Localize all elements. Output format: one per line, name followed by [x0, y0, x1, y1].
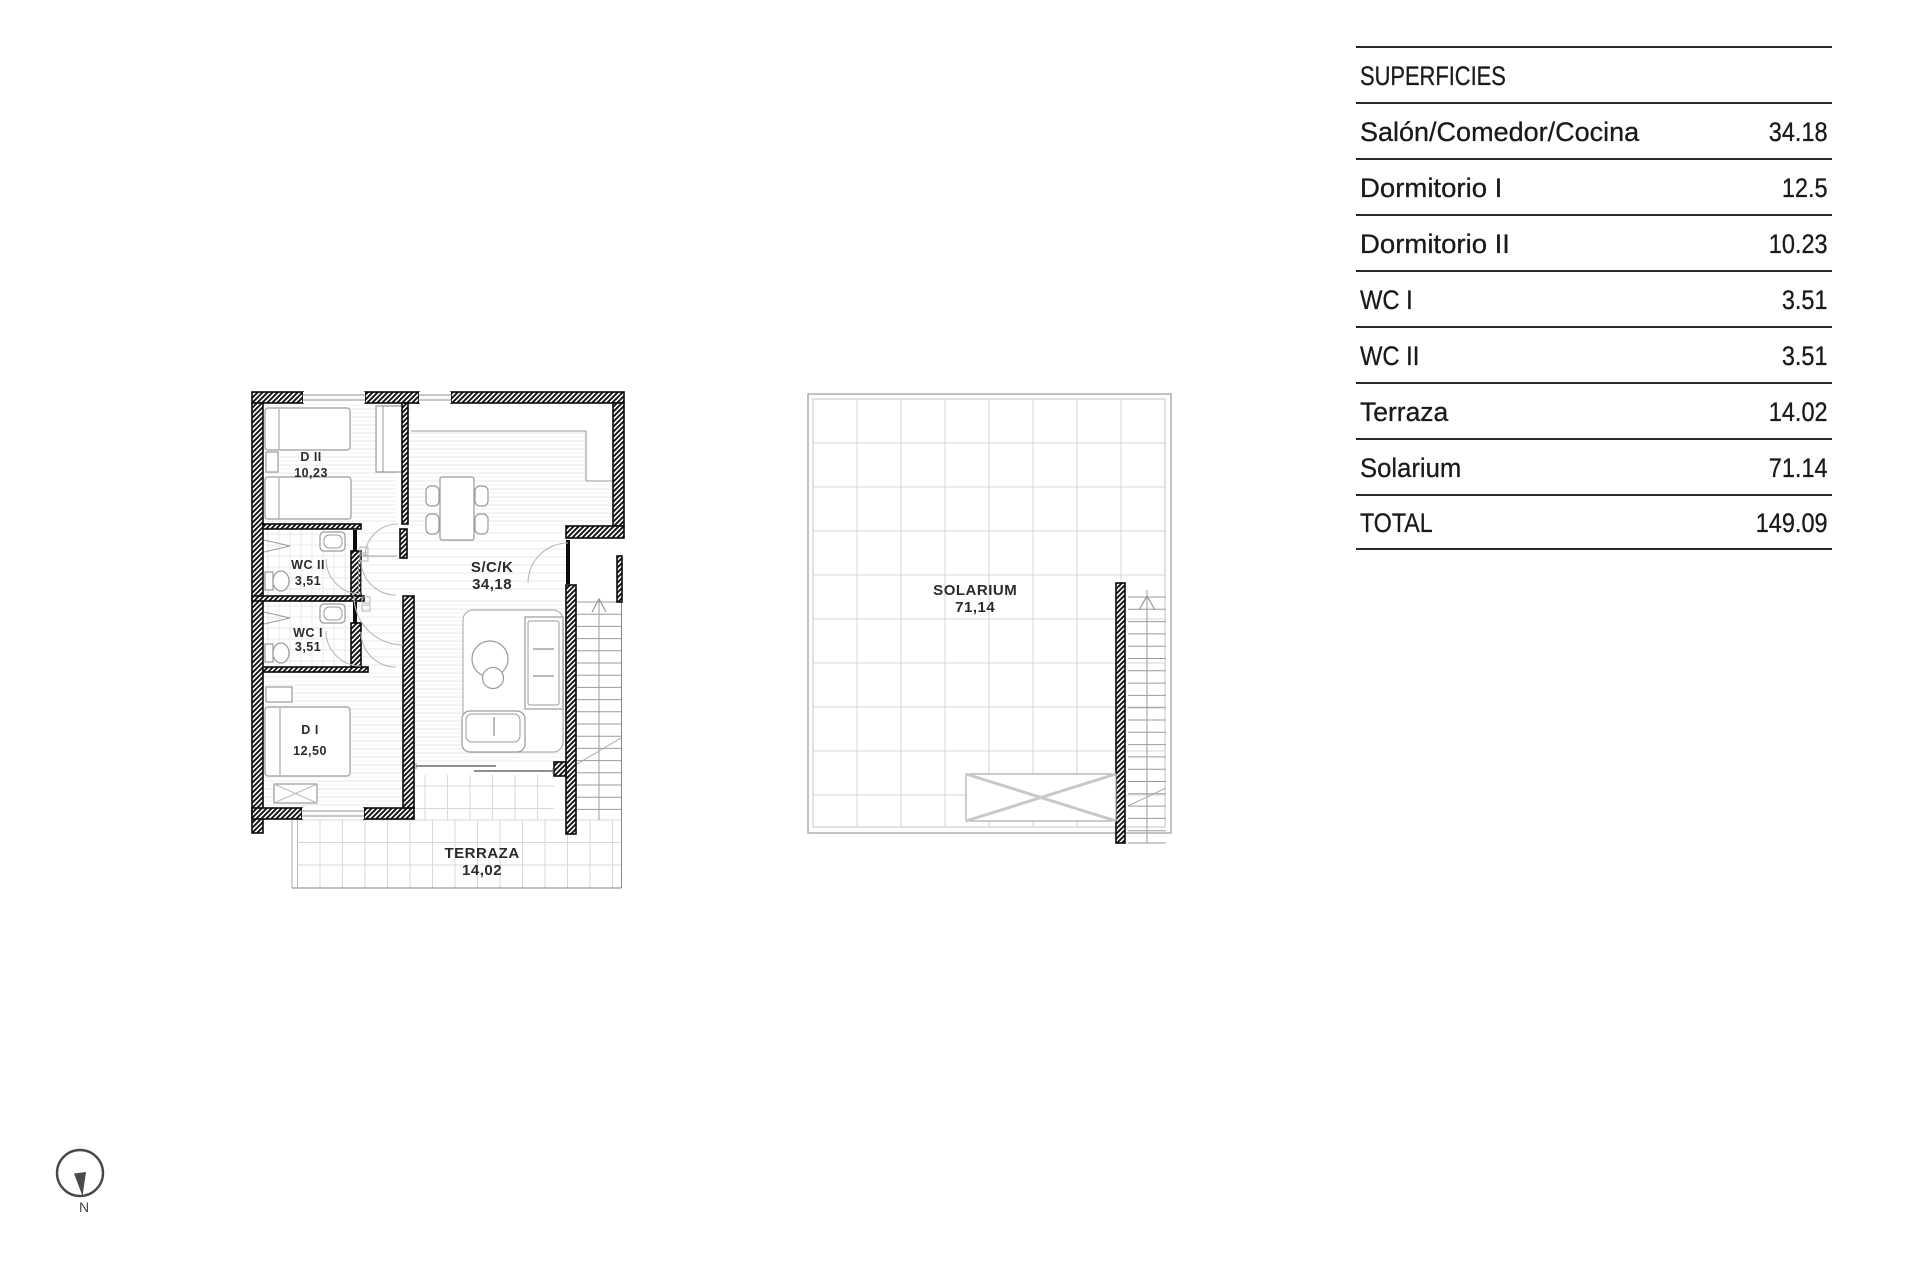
svg-text:S/C/K: S/C/K [471, 559, 514, 576]
svg-text:14,02: 14,02 [462, 862, 502, 879]
svg-text:WC II: WC II [291, 558, 325, 572]
svg-text:D I: D I [301, 723, 318, 737]
svg-text:TERRAZA: TERRAZA [445, 845, 520, 862]
svg-text:12,50: 12,50 [293, 744, 327, 758]
svg-text:10,23: 10,23 [294, 466, 328, 480]
svg-text:71,14: 71,14 [955, 599, 995, 616]
svg-text:SOLARIUM: SOLARIUM [933, 582, 1017, 599]
svg-text:3,51: 3,51 [295, 574, 321, 588]
svg-text:34,18: 34,18 [472, 576, 512, 593]
svg-text:N: N [79, 1199, 89, 1215]
svg-text:3,51: 3,51 [295, 640, 321, 654]
svg-text:WC I: WC I [293, 626, 323, 640]
svg-text:D II: D II [300, 450, 321, 464]
